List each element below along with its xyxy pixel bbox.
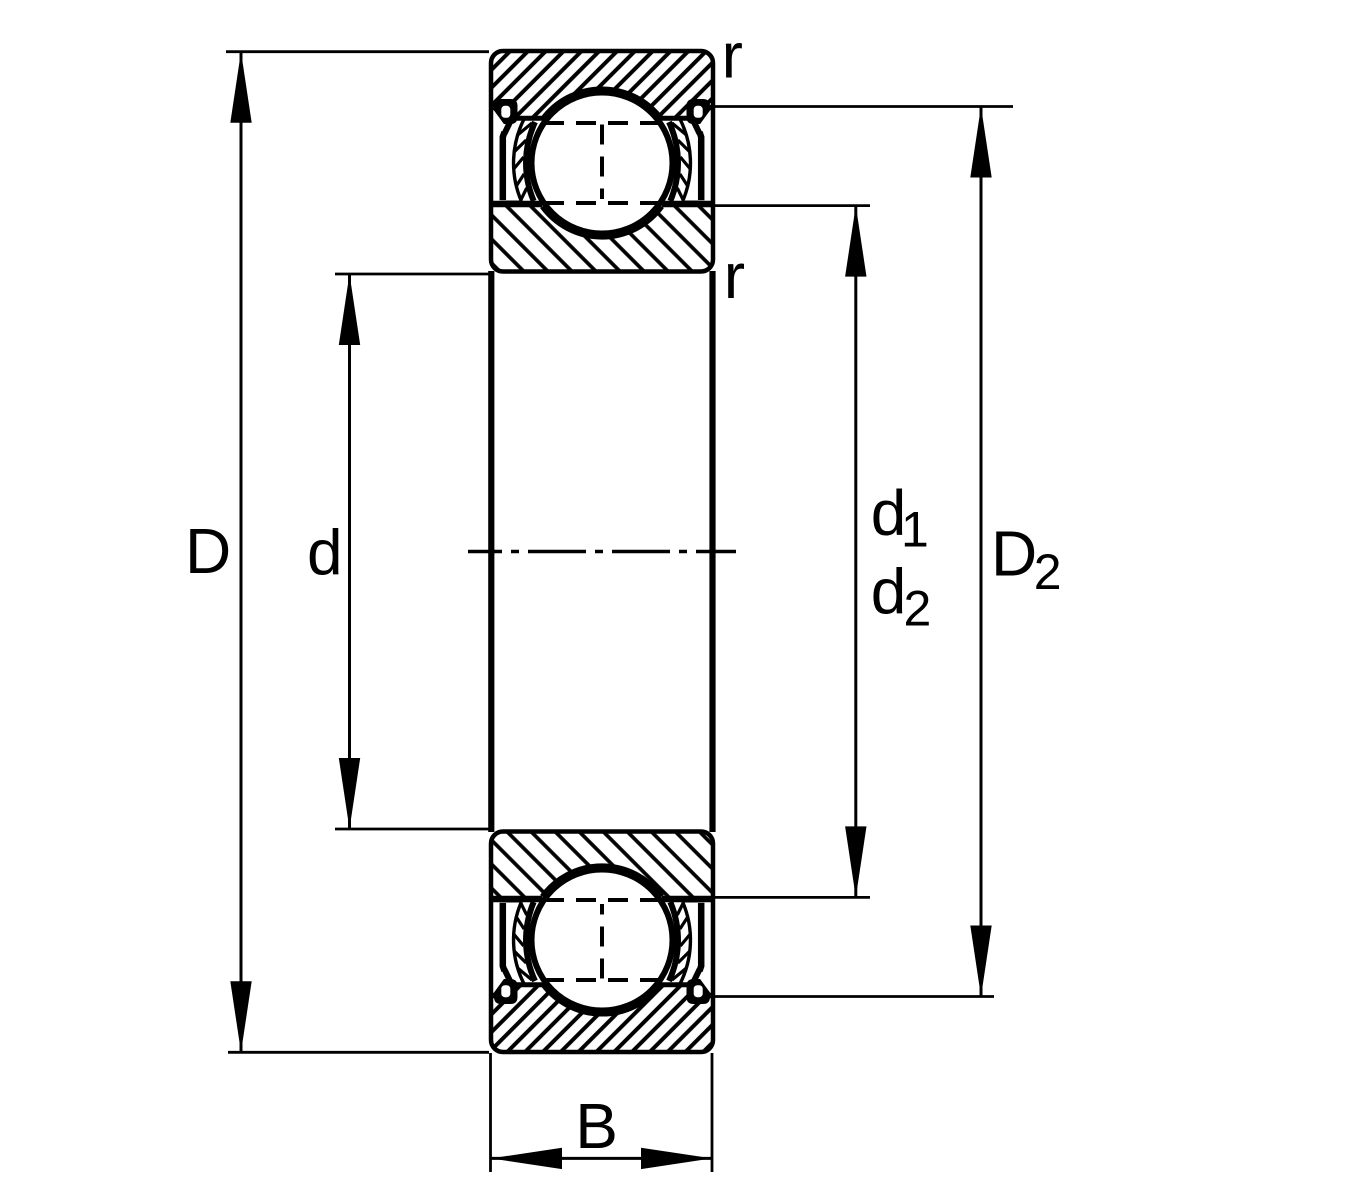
svg-text:B: B <box>575 1090 618 1162</box>
svg-text:1: 1 <box>901 502 929 558</box>
svg-text:r: r <box>722 20 743 92</box>
svg-text:D: D <box>185 515 231 587</box>
svg-text:d: d <box>871 556 907 628</box>
svg-text:2: 2 <box>1034 544 1062 600</box>
svg-text:D: D <box>991 517 1037 589</box>
svg-text:d: d <box>307 516 343 588</box>
svg-text:2: 2 <box>904 580 932 636</box>
svg-text:r: r <box>724 240 745 312</box>
